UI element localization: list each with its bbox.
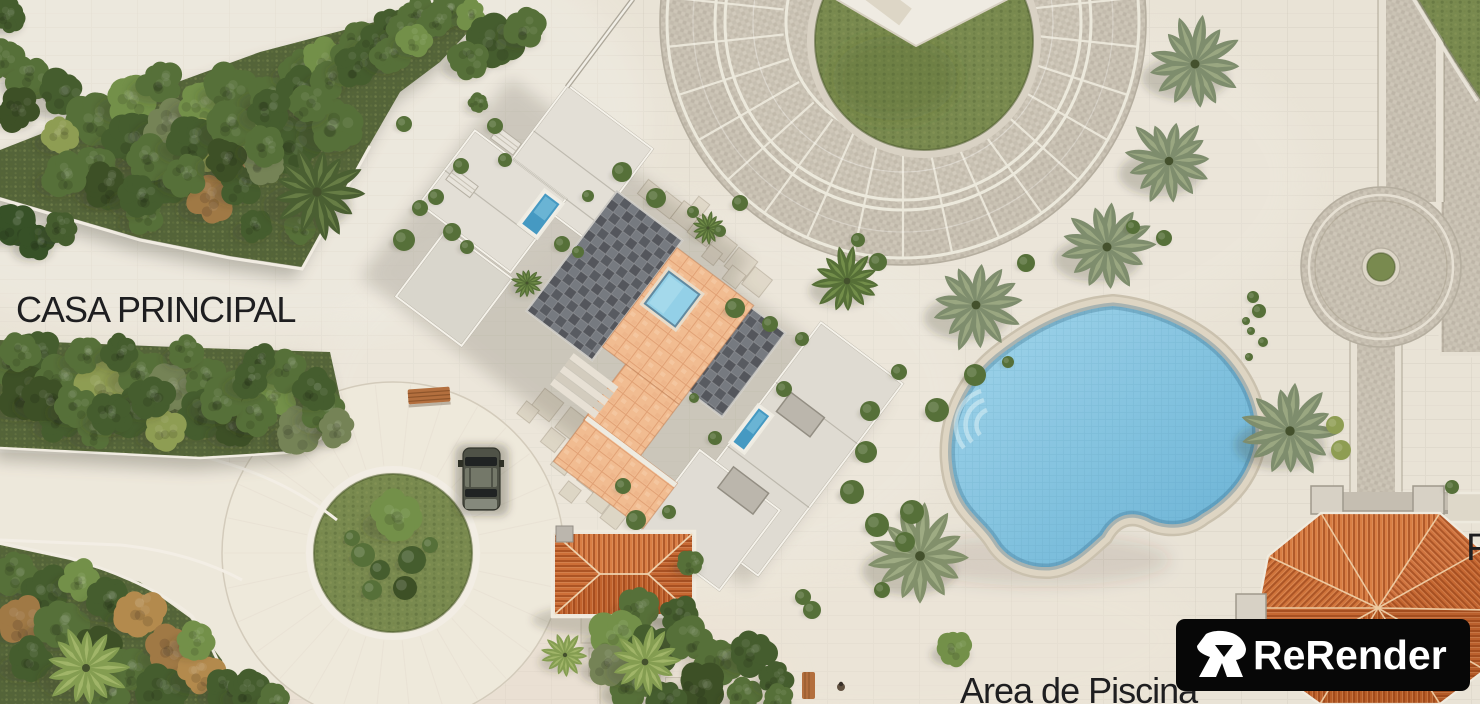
svg-text:ReRender: ReRender [1253,632,1447,678]
svg-text:Area de Piscina: Area de Piscina [960,670,1199,704]
svg-text:P: P [1466,527,1480,569]
svg-text:CASA PRINCIPAL: CASA PRINCIPAL [16,289,295,330]
